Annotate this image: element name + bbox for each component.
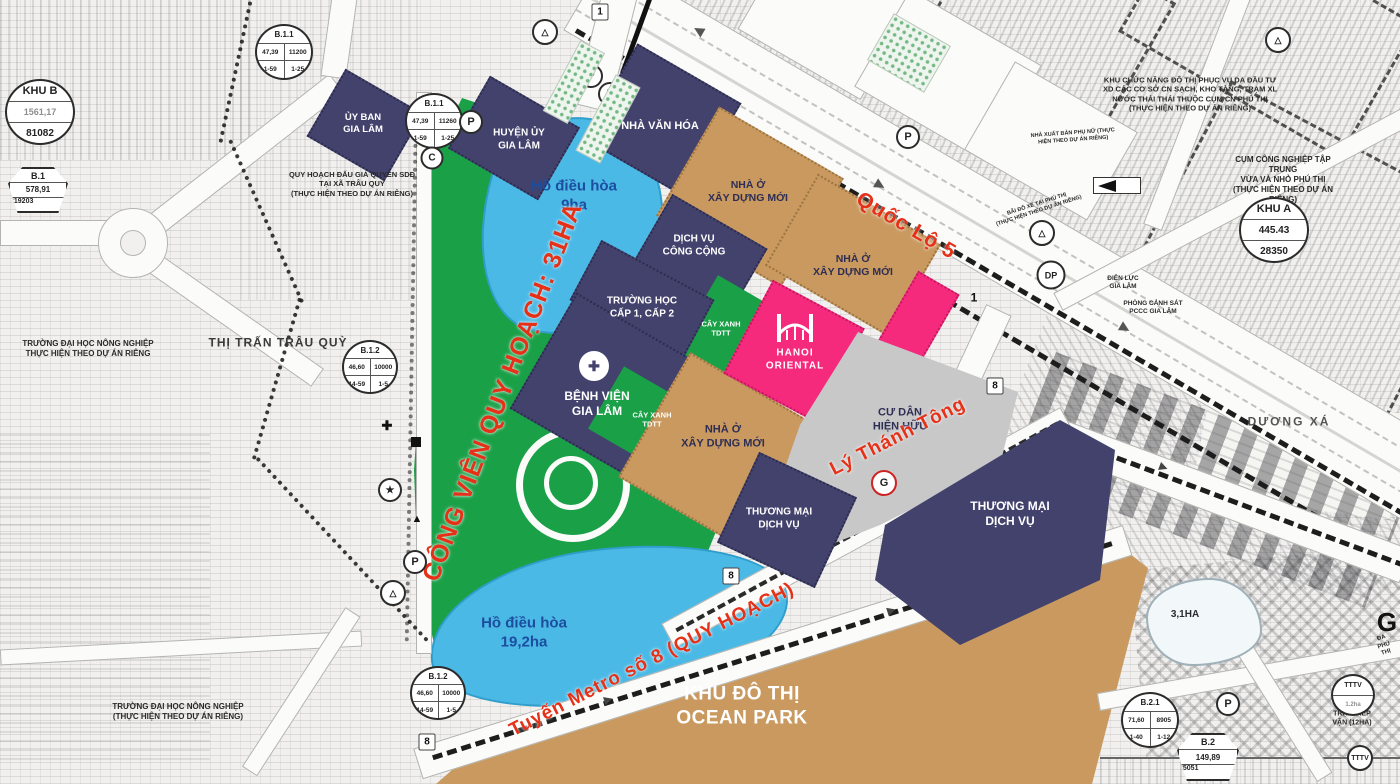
zone-label: NHÀ Ở XÂY DỰNG MỚI (813, 253, 893, 279)
zone-label: KHU ĐÔ THỊ OCEAN PARK (676, 682, 807, 730)
zone-label: CÂY XANH TDTT (632, 411, 671, 430)
area-label-phong-canh-sat: PHÒNG CẢNH SÁT PCCC GIA LÂM (1123, 300, 1182, 316)
triangle-symbol-icon: ▲ (412, 513, 423, 527)
traffic-arrow-icon: ◄ (686, 17, 711, 43)
map-symbol-icon: △ (532, 19, 558, 45)
parking-marker: P (459, 110, 483, 134)
c-marker: C (421, 147, 444, 170)
route-1-badge: 1 (967, 290, 982, 305)
zone-label: DỊCH VỤ CÔNG CỘNG (663, 234, 726, 259)
zone-label: NHÀ Ở XÂY DỰNG MỚI (681, 423, 765, 451)
badge-b12-south: B.1.2 46,6010000 14-591-5 (410, 666, 466, 720)
parking-marker: P (1216, 692, 1240, 716)
route-1-badge: 1 (592, 4, 609, 21)
badge-khu-b: KHU B 1561,17 81082 (5, 79, 75, 145)
badge-tttv: TTTV 1.2ha (1331, 674, 1375, 716)
zone-label: TRƯỜNG HỌC CẤP 1, CẤP 2 (607, 296, 677, 321)
zone-label: THƯƠNG MẠI DỊCH VỤ (746, 507, 812, 532)
map-symbol-icon: △ (1265, 27, 1291, 53)
park-garden-center (544, 456, 598, 510)
badge-khu-a: KHU A 445.43 28350 (1239, 197, 1309, 263)
map-symbol-icon: △ (1029, 220, 1055, 246)
zone-label: HUYỆN ỦY GIA LÂM (493, 128, 545, 153)
zone-label: NHÀ VĂN HÓA (621, 120, 699, 134)
lake-label: Hồ điều hòa 19,2ha (481, 614, 567, 652)
cross-symbol-icon: ✚ (382, 418, 393, 434)
parking-marker: P (403, 550, 427, 574)
area-label-g: G (1377, 606, 1397, 639)
zone-label: CÂY XANH TDTT (701, 320, 740, 339)
square-symbol-icon (411, 437, 421, 447)
dp-marker: DP (1037, 261, 1066, 290)
lake-3-1ha (1146, 578, 1262, 666)
area-label-duong-xa: DƯƠNG XÁ (1248, 415, 1331, 430)
badge-b1: B.1 578,91 31920 3 (8, 167, 68, 213)
hospital-cross-icon: ✚ (579, 351, 609, 381)
badge-b11b: B.1.1 47,3911260 1-591-25 (405, 93, 463, 149)
zone-label: THƯƠNG MẠI DỊCH VỤ (970, 499, 1050, 529)
zone-label: ỦY BAN GIA LÂM (343, 112, 383, 136)
area-label-university-1: TRƯỜNG ĐẠI HỌC NÔNG NGHIỆP THỰC HIỆN THE… (22, 339, 153, 359)
badge-b21: B.2.1 71,608905 1-401-12 (1121, 692, 1179, 748)
area-label-khu-chuc-nang: KHU CHỨC NĂNG ĐÔ THỊ PHỤC VỤ DA ĐẦU TƯ X… (1103, 75, 1277, 113)
zone-label: NHÀ Ở XÂY DỰNG MỚI (708, 179, 788, 205)
route-8-badge: 8 (987, 378, 1004, 395)
badge-b2: B.2 149,89 8505 1 (1177, 733, 1239, 781)
hanoi-oriental-logo-icon (773, 312, 817, 344)
zone-label: HANOI ORIENTAL (766, 348, 824, 373)
map-symbol-icon: △ (380, 580, 406, 606)
badge-b11: B.1.1 47,3911200 1-591-25 (255, 24, 313, 80)
metro-station-g-marker: G (871, 470, 897, 496)
badge-b12: B.1.2 46,6010000 14-591-5 (342, 340, 398, 394)
planning-map: ◄ ► ► ► ► ► (0, 0, 1400, 784)
area-label-university-2: TRƯỜNG ĐẠI HỌC NÔNG NGHIỆP (THỰC HIỆN TH… (112, 702, 243, 722)
area-label-dien-luc: ĐIỆN LỰC GIA LÂM (1107, 275, 1138, 291)
lake-label: 3,1HA (1171, 609, 1199, 622)
roundabout-island (120, 230, 146, 256)
area-label-thi-tran-trau-quy: THỊ TRẤN TRÂU QUỲ (209, 336, 348, 351)
zone-label: BỆNH VIỆN GIA LÂM (564, 389, 629, 419)
star-marker-icon: ★ (378, 478, 402, 502)
road-west (0, 220, 114, 246)
parking-marker: P (896, 125, 920, 149)
route-8-badge: 8 (419, 734, 436, 751)
area-label-auction-plan: QUY HOẠCH ĐẤU GIÁ QUYỀN SDĐ TẠI XÃ TRÂU … (289, 170, 415, 198)
route-8-badge: 8 (723, 568, 740, 585)
arrow-symbol-icon (1093, 177, 1141, 194)
map-symbol-icon: TTTV (1347, 745, 1373, 771)
